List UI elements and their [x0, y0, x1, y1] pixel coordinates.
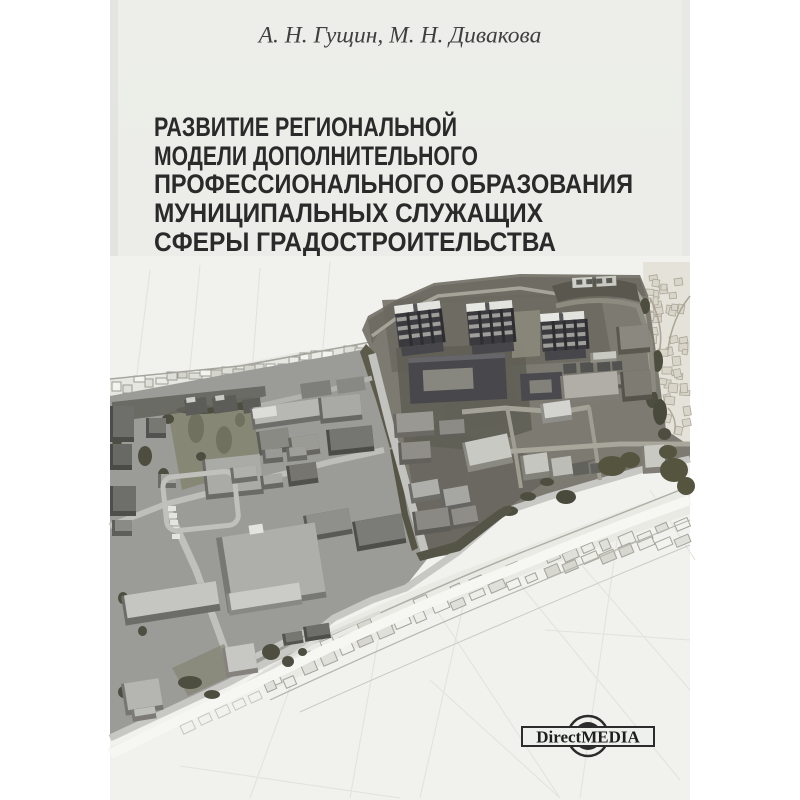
svg-text:А. Н. Гущин, М. Н. Дивакова: А. Н. Гущин, М. Н. Дивакова [257, 23, 542, 49]
svg-text:МОДЕЛИ ДОПОЛНИТЕЛЬНОГО: МОДЕЛИ ДОПОЛНИТЕЛЬНОГО [154, 141, 478, 171]
svg-text:DirectMEDIA: DirectMEDIA [536, 728, 640, 747]
svg-text:РАЗВИТИЕ РЕГИОНАЛЬНОЙ: РАЗВИТИЕ РЕГИОНАЛЬНОЙ [154, 111, 457, 142]
svg-text:ПРОФЕССИОНАЛЬНОГО ОБРАЗОВАНИЯ: ПРОФЕССИОНАЛЬНОГО ОБРАЗОВАНИЯ [154, 169, 633, 199]
svg-text:СФЕРЫ ГРАДОСТРОИТЕЛЬСТВА: СФЕРЫ ГРАДОСТРОИТЕЛЬСТВА [154, 227, 556, 257]
svg-text:МУНИЦИПАЛЬНЫХ СЛУЖАЩИХ: МУНИЦИПАЛЬНЫХ СЛУЖАЩИХ [154, 198, 543, 228]
